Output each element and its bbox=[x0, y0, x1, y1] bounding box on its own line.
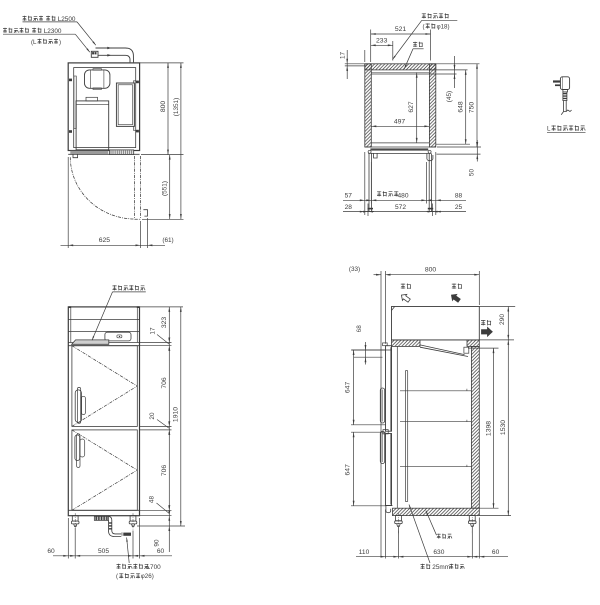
svg-text:φ26): φ26) bbox=[141, 573, 154, 580]
svg-text:648: 648 bbox=[457, 101, 464, 113]
svg-text:521: 521 bbox=[395, 26, 407, 33]
svg-text:L: L bbox=[547, 126, 551, 133]
svg-text:497: 497 bbox=[394, 118, 406, 125]
svg-text:1398: 1398 bbox=[485, 421, 492, 436]
svg-text:630: 630 bbox=[433, 549, 444, 556]
svg-text:L700: L700 bbox=[147, 564, 162, 571]
svg-text:800: 800 bbox=[160, 101, 167, 113]
svg-text:48: 48 bbox=[149, 496, 156, 504]
svg-text:60: 60 bbox=[157, 548, 165, 555]
svg-text:323: 323 bbox=[161, 317, 168, 329]
svg-text:110: 110 bbox=[359, 549, 370, 556]
svg-text:(551): (551) bbox=[162, 181, 169, 196]
svg-text:1910: 1910 bbox=[173, 407, 180, 422]
svg-text:(1351): (1351) bbox=[173, 98, 180, 116]
svg-text:28: 28 bbox=[345, 204, 353, 211]
svg-text:90: 90 bbox=[154, 539, 161, 547]
svg-text:800: 800 bbox=[425, 267, 437, 274]
svg-text:647: 647 bbox=[344, 464, 351, 476]
svg-text:57: 57 bbox=[345, 193, 353, 200]
svg-text:88: 88 bbox=[455, 193, 463, 200]
svg-text:572: 572 bbox=[395, 204, 406, 211]
svg-text:(33): (33) bbox=[349, 266, 360, 273]
svg-text:60: 60 bbox=[492, 549, 500, 556]
svg-text:(61): (61) bbox=[162, 237, 173, 244]
svg-text:625: 625 bbox=[99, 237, 111, 244]
svg-text:706: 706 bbox=[161, 377, 168, 389]
svg-text:1530: 1530 bbox=[500, 420, 507, 435]
svg-text:750: 750 bbox=[469, 102, 476, 114]
svg-text:290: 290 bbox=[499, 314, 506, 325]
svg-text:627: 627 bbox=[408, 101, 415, 113]
svg-text:17: 17 bbox=[150, 327, 157, 335]
svg-text:25: 25 bbox=[455, 204, 463, 211]
svg-text:50: 50 bbox=[469, 169, 476, 177]
svg-text:706: 706 bbox=[161, 465, 168, 477]
svg-text:25mm: 25mm bbox=[432, 564, 450, 571]
svg-text:φ18): φ18) bbox=[437, 24, 450, 31]
svg-text:233: 233 bbox=[376, 38, 388, 45]
svg-text:(L: (L bbox=[31, 39, 37, 46]
svg-text:20: 20 bbox=[149, 412, 156, 420]
svg-text:68: 68 bbox=[356, 325, 363, 333]
svg-text:17: 17 bbox=[339, 52, 346, 60]
svg-text:647: 647 bbox=[344, 382, 351, 394]
svg-text:505: 505 bbox=[98, 548, 109, 555]
svg-text:60: 60 bbox=[47, 548, 55, 555]
svg-text:(45): (45) bbox=[446, 91, 453, 102]
svg-text:480: 480 bbox=[398, 193, 409, 200]
svg-text:): ) bbox=[59, 39, 61, 46]
